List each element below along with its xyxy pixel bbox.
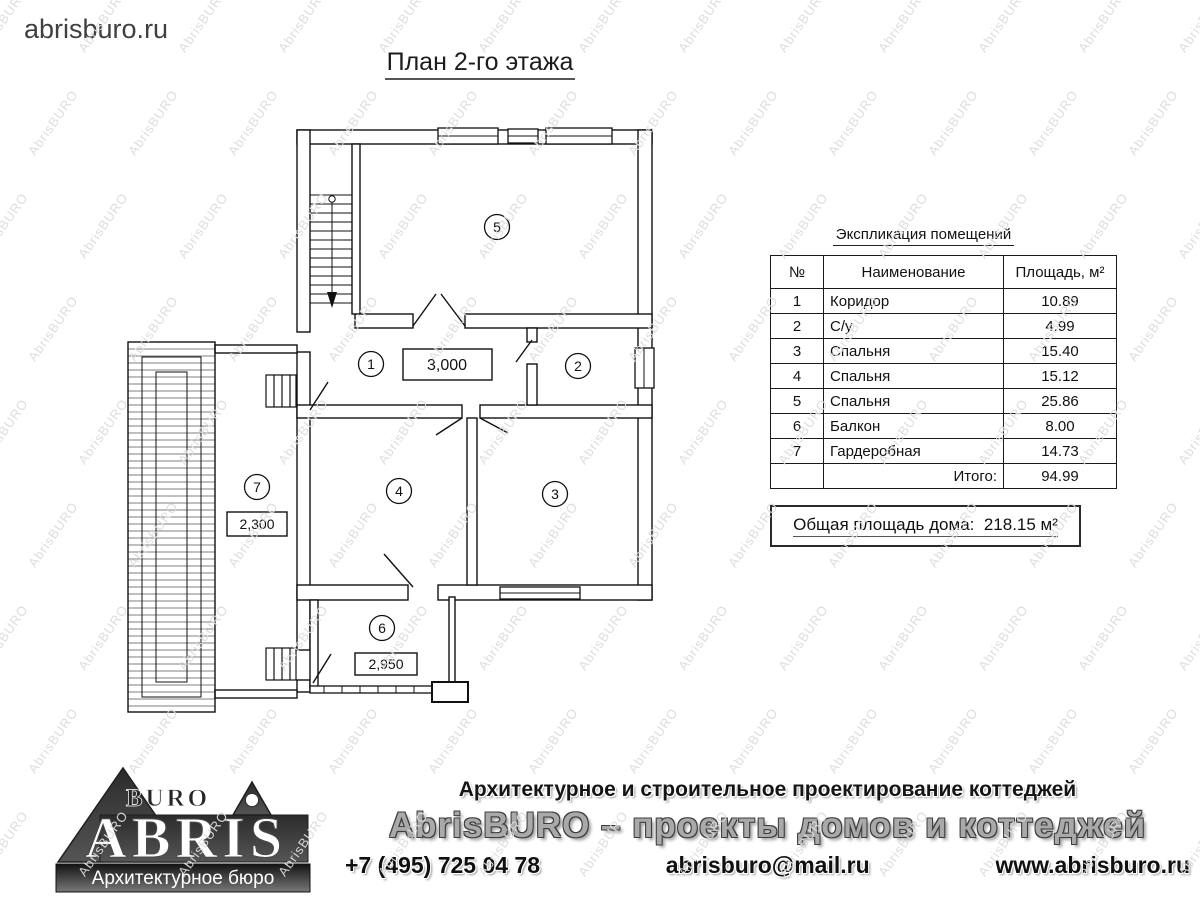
room-spec-table: № Наименование Площадь, м² 1 Коридор 10.… bbox=[770, 255, 1117, 489]
table-row: 2 С/у 4.99 bbox=[771, 314, 1117, 339]
watermark-text: AbrisBURO bbox=[0, 190, 31, 261]
cell-number: 7 bbox=[771, 439, 824, 464]
cell-area: 15.12 bbox=[1004, 364, 1117, 389]
window-top-right bbox=[546, 128, 612, 144]
table-row: 1 Коридор 10.89 bbox=[771, 289, 1117, 314]
watermark-text: AbrisBURO bbox=[675, 602, 731, 673]
watermark-text: AbrisBURO bbox=[675, 0, 731, 55]
window-top-middle bbox=[508, 129, 538, 143]
total-label: Итого: bbox=[824, 464, 1004, 489]
door-room2 bbox=[516, 340, 532, 362]
logo-abris-text: ABRIS bbox=[85, 805, 287, 870]
cell-number: 2 bbox=[771, 314, 824, 339]
header-name: Наименование bbox=[824, 256, 1004, 289]
watermark-text: AbrisBURO bbox=[0, 602, 31, 673]
total-area-text: Общая площадь дома: 218.15 м² bbox=[793, 515, 1058, 537]
watermark-text: AbrisBURO bbox=[25, 499, 81, 570]
watermark-text: AbrisBURO bbox=[0, 808, 31, 879]
footer-phone: +7 (495) 725 04 78 bbox=[345, 852, 540, 879]
cell-name: Коридор bbox=[824, 289, 1004, 314]
cell-area: 14.73 bbox=[1004, 439, 1117, 464]
balcony-railing bbox=[310, 682, 468, 702]
cell-area: 10.89 bbox=[1004, 289, 1117, 314]
watermark-text: AbrisBURO bbox=[975, 0, 1031, 55]
cell-number: 6 bbox=[771, 414, 824, 439]
door-room5 bbox=[413, 294, 465, 326]
watermark-text: AbrisBURO bbox=[1025, 87, 1081, 158]
footer-email[interactable]: abrisburo@mail.ru bbox=[666, 852, 870, 879]
cell-name: Спальня bbox=[824, 364, 1004, 389]
footer-website[interactable]: www.abrisburo.ru bbox=[995, 852, 1190, 879]
logo-tagline: Архитектурное бюро bbox=[92, 868, 275, 889]
watermark-text: AbrisBURO bbox=[175, 0, 231, 55]
watermark-text: AbrisBURO bbox=[25, 293, 81, 364]
table-row: 4 Спальня 15.12 bbox=[771, 364, 1117, 389]
footer-text-block: Архитектурное и строительное проектирова… bbox=[345, 778, 1190, 879]
watermark-text: AbrisBURO bbox=[975, 602, 1031, 673]
total-area-box: Общая площадь дома: 218.15 м² bbox=[770, 505, 1081, 547]
watermark-text: AbrisBURO bbox=[1125, 293, 1181, 364]
watermark-text: AbrisBURO bbox=[1125, 499, 1181, 570]
footer-main-title: AbrisBURO – проекты домов и коттеджей bbox=[345, 806, 1190, 846]
cell-name: Спальня bbox=[824, 389, 1004, 414]
cell-name: Гардеробная bbox=[824, 439, 1004, 464]
table-row: 3 Спальня 15.40 bbox=[771, 339, 1117, 364]
floor-plan-drawing: 3,000 2,300 2,950 1 2 3 4 5 6 7 bbox=[120, 120, 680, 720]
watermark-text: AbrisBURO bbox=[925, 87, 981, 158]
footer-subtitle: Архитектурное и строительное проектирова… bbox=[345, 778, 1190, 802]
total-value: 94.99 bbox=[1004, 464, 1117, 489]
room-number-7: 7 bbox=[253, 479, 261, 495]
spec-table-title-text: Экспликация помещений bbox=[833, 226, 1014, 246]
cell-area: 15.40 bbox=[1004, 339, 1117, 364]
window-room3-bottom bbox=[500, 587, 580, 599]
watermark-text: AbrisBURO bbox=[725, 705, 781, 776]
watermark-text: AbrisBURO bbox=[725, 87, 781, 158]
balcony-pillar bbox=[432, 682, 468, 702]
spec-table-title: Экспликация помещений bbox=[770, 226, 1077, 243]
watermark-text: AbrisBURO bbox=[875, 602, 931, 673]
cell-name: Балкон bbox=[824, 414, 1004, 439]
room-number-2: 2 bbox=[574, 358, 582, 374]
watermark-text: AbrisBURO bbox=[25, 87, 81, 158]
watermark-text: AbrisBURO bbox=[1075, 602, 1131, 673]
door-balcony-room4 bbox=[384, 554, 413, 587]
cell-number: 4 bbox=[771, 364, 824, 389]
watermark-text: AbrisBURO bbox=[775, 0, 831, 55]
watermark-text: AbrisBURO bbox=[1125, 705, 1181, 776]
stairs bbox=[310, 195, 352, 308]
watermark-text: AbrisBURO bbox=[1075, 0, 1131, 55]
watermark-text: AbrisBURO bbox=[825, 87, 881, 158]
watermark-text: AbrisBURO bbox=[675, 190, 731, 261]
total-area-label: Общая площадь дома: bbox=[793, 515, 974, 534]
table-header-row: № Наименование Площадь, м² bbox=[771, 256, 1117, 289]
watermark-text: AbrisBURO bbox=[1075, 190, 1131, 261]
watermark-text: AbrisBURO bbox=[375, 0, 431, 55]
room-number-1: 1 bbox=[367, 356, 375, 372]
watermark-text: AbrisBURO bbox=[1175, 190, 1200, 261]
door-room4 bbox=[436, 418, 462, 435]
watermark-text: AbrisBURO bbox=[275, 0, 331, 55]
cell-area: 4.99 bbox=[1004, 314, 1117, 339]
header-area: Площадь, м² bbox=[1004, 256, 1117, 289]
watermark-text: AbrisBURO bbox=[1175, 396, 1200, 467]
room-number-3: 3 bbox=[551, 486, 559, 502]
table-total-row: Итого: 94.99 bbox=[771, 464, 1117, 489]
walls bbox=[215, 130, 652, 698]
table-row: 5 Спальня 25.86 bbox=[771, 389, 1117, 414]
watermark-text: AbrisBURO bbox=[675, 396, 731, 467]
terrace-hatch bbox=[128, 342, 215, 712]
window-top-left bbox=[438, 128, 498, 144]
cell-number: 5 bbox=[771, 389, 824, 414]
window-right-wall bbox=[635, 348, 654, 388]
cell-name: С/у bbox=[824, 314, 1004, 339]
watermark-text: AbrisBURO bbox=[1175, 602, 1200, 673]
dim-dressing: 2,300 bbox=[239, 516, 274, 532]
watermark-text: AbrisBURO bbox=[925, 705, 981, 776]
cell-name: Спальня bbox=[824, 339, 1004, 364]
watermark-text: AbrisBURO bbox=[1175, 0, 1200, 55]
watermark-text: AbrisBURO bbox=[775, 602, 831, 673]
company-logo: BURO ABRIS Архитектурное бюро bbox=[40, 760, 340, 898]
watermark-text: AbrisBURO bbox=[825, 705, 881, 776]
watermark-text: AbrisBURO bbox=[1025, 705, 1081, 776]
watermark-text: AbrisBURO bbox=[575, 0, 631, 55]
table-row: 7 Гардеробная 14.73 bbox=[771, 439, 1117, 464]
page-title-text: План 2-го этажа bbox=[385, 48, 576, 80]
dim-corridor: 3,000 bbox=[427, 357, 467, 374]
cell-area: 8.00 bbox=[1004, 414, 1117, 439]
table-row: 6 Балкон 8.00 bbox=[771, 414, 1117, 439]
room-number-5: 5 bbox=[493, 219, 501, 235]
cell-number: 3 bbox=[771, 339, 824, 364]
watermark-text: AbrisBURO bbox=[475, 0, 531, 55]
cell-number: 1 bbox=[771, 289, 824, 314]
header-number: № bbox=[771, 256, 824, 289]
cell-area: 25.86 bbox=[1004, 389, 1117, 414]
dim-balcony: 2,950 bbox=[368, 656, 403, 672]
watermark-text: AbrisBURO bbox=[1125, 87, 1181, 158]
watermark-text: AbrisBURO bbox=[0, 396, 31, 467]
footer-contacts: +7 (495) 725 04 78 abrisburo@mail.ru www… bbox=[345, 852, 1190, 879]
cell-empty bbox=[771, 464, 824, 489]
site-url-text: abrisburo.ru bbox=[24, 14, 168, 45]
watermark-text: AbrisBURO bbox=[875, 0, 931, 55]
door-room3 bbox=[480, 418, 508, 433]
total-area-value: 218.15 м² bbox=[984, 515, 1058, 534]
room-number-6: 6 bbox=[378, 620, 386, 636]
room-number-4: 4 bbox=[395, 483, 403, 499]
page-title: План 2-го этажа bbox=[300, 48, 660, 77]
